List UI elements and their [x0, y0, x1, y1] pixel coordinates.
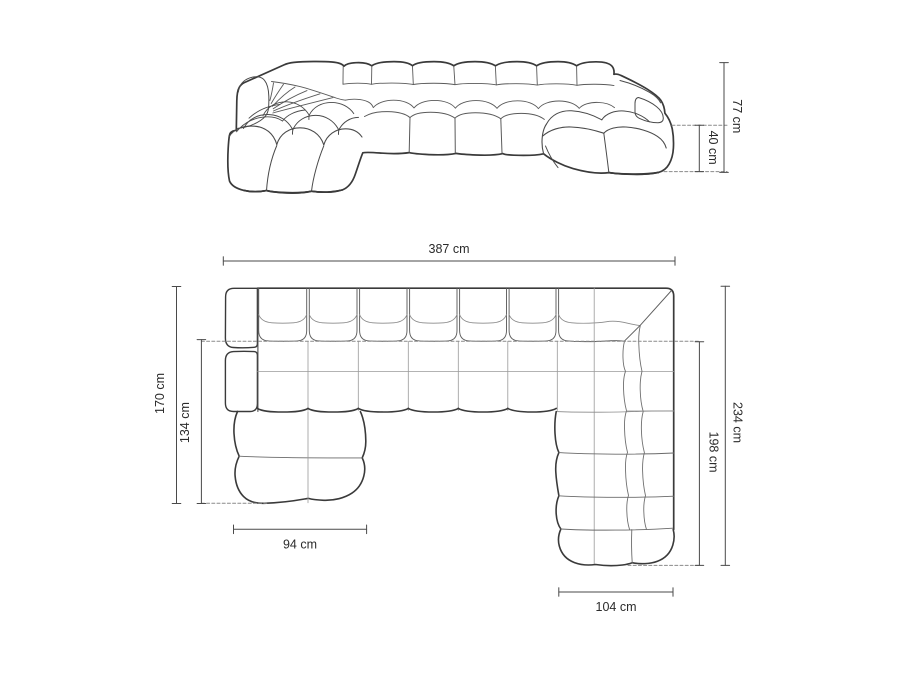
svg-text:234 cm: 234 cm: [731, 402, 745, 443]
svg-text:104 cm: 104 cm: [596, 600, 637, 614]
svg-text:170 cm: 170 cm: [153, 373, 167, 414]
svg-text:77 cm: 77 cm: [730, 99, 744, 133]
svg-text:387 cm: 387 cm: [429, 242, 470, 256]
svg-text:198 cm: 198 cm: [707, 432, 721, 473]
svg-text:94 cm: 94 cm: [283, 538, 317, 552]
svg-text:134 cm: 134 cm: [178, 402, 192, 443]
svg-text:40 cm: 40 cm: [706, 131, 720, 165]
